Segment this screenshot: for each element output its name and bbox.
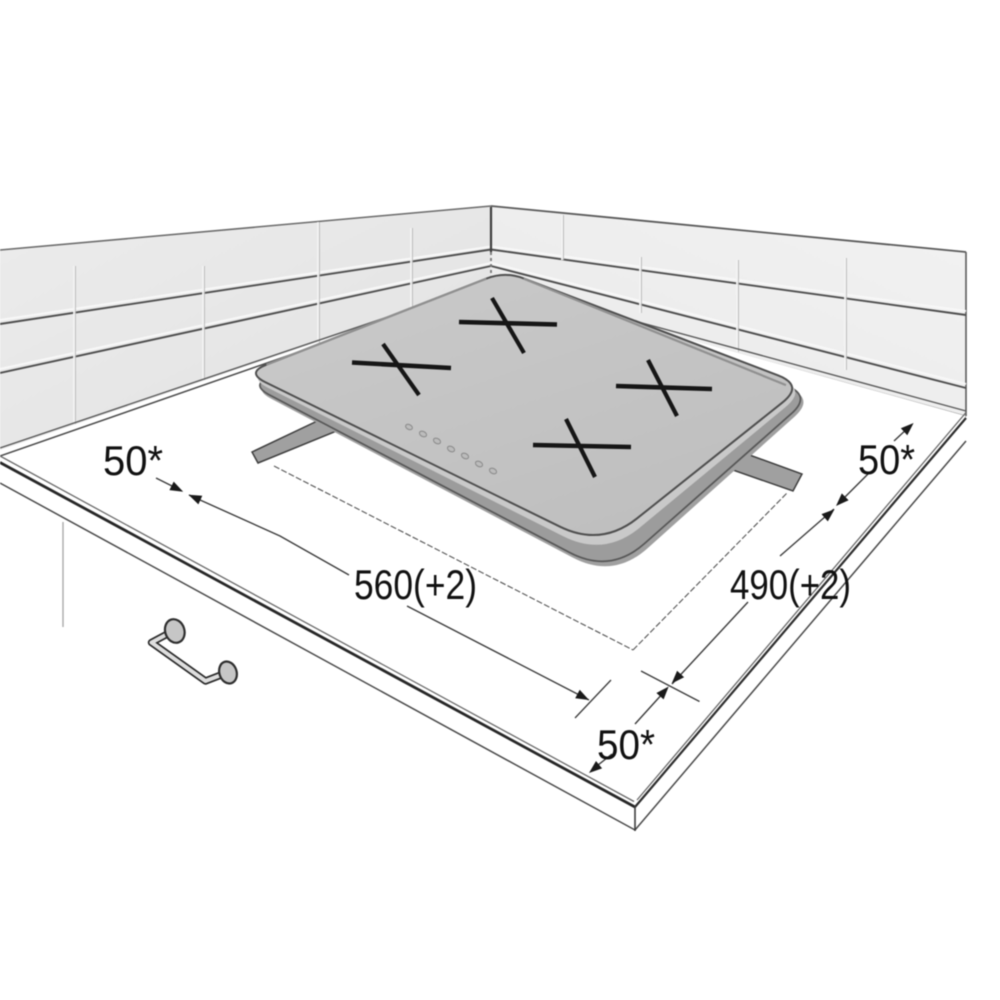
svg-text:50*: 50* [103, 437, 163, 484]
svg-text:490(+2): 490(+2) [730, 561, 851, 608]
svg-text:50*: 50* [858, 436, 915, 483]
svg-text:50*: 50* [597, 721, 655, 768]
svg-text:560(+2): 560(+2) [354, 561, 477, 608]
